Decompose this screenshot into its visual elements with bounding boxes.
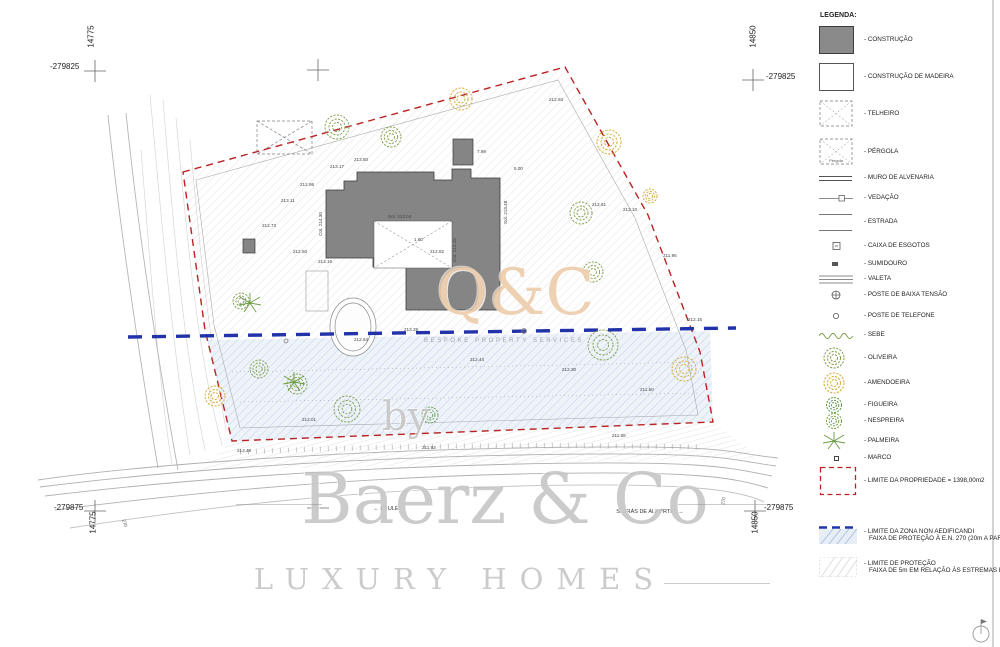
outbuilding-top: [453, 139, 473, 165]
almond-tree-swatch-icon: [819, 371, 849, 395]
almond-tree-icon: [597, 130, 621, 154]
power-pole-swatch-icon: [819, 289, 853, 301]
svg-text:Sol. 213.48: Sol. 213.48: [503, 200, 508, 224]
legend-item-label: - CONSTRUÇÃO DE MADEIRA: [864, 73, 954, 81]
olive-tree-swatch-icon: [819, 346, 849, 370]
legend-item-label: - CONSTRUÇÃO: [864, 36, 913, 44]
legend-item-label: - NESPREIRA: [864, 417, 904, 425]
legend-item-label: - POSTE DE TELEFONE: [864, 312, 935, 320]
svg-text:212.44: 212.44: [470, 357, 484, 362]
svg-text:213.17: 213.17: [330, 164, 344, 169]
legend-item-oliveira: - OLIVEIRA: [819, 346, 897, 370]
legend-item-label: - OLIVEIRA: [864, 354, 897, 362]
svg-text:213.10: 213.10: [623, 207, 637, 212]
brand-watermark-line-right: [678, 504, 768, 505]
non-aedificandi-hatch: [207, 331, 713, 441]
legend-item-nespreira: - NESPREIRA: [819, 412, 904, 430]
qc-watermark: Q&C: [436, 256, 594, 330]
svg-text:213.16: 213.16: [318, 259, 332, 264]
telheiro-swatch-icon: [819, 100, 853, 127]
legend-item-construcao: - CONSTRUÇÃO: [819, 26, 913, 53]
palm-tree-swatch-icon: [819, 430, 849, 452]
svg-text:213.11: 213.11: [281, 198, 295, 203]
svg-text:212.95: 212.95: [300, 182, 314, 187]
drain-swatch-icon: [832, 262, 838, 266]
outbuilding-left: [243, 239, 255, 253]
svg-text:212.30: 212.30: [562, 367, 576, 372]
legend-item-muro: - MURO DE ALVENARIA: [819, 172, 934, 184]
site-plan-page: 213.17 213.50 212.95 213.11 212.73 212.5…: [0, 0, 1000, 647]
svg-text:212.54: 212.54: [354, 337, 368, 342]
pool: [330, 298, 376, 356]
qc-watermark-subtitle: BESPOKE PROPERTY SERVICES: [424, 338, 584, 344]
hedge-swatch-icon: [819, 330, 853, 340]
construction-swatch-icon: [819, 26, 854, 54]
pergola-swatch-icon: Pérgola: [819, 138, 853, 165]
left-road: [108, 113, 178, 470]
non-aedificandi-swatch-icon: [819, 526, 857, 544]
svg-text:Sol. 213.04: Sol. 213.04: [388, 214, 412, 219]
legend-item-amendoeira: - AMENDOEIRA: [819, 371, 910, 395]
svg-text:211.96: 211.96: [663, 253, 677, 258]
svg-text:213.50: 213.50: [354, 157, 368, 162]
svg-text:211.58: 211.58: [612, 433, 626, 438]
legend-item-label: - LIMITE DA PROPRIEDADE = 1398,00m2: [864, 477, 985, 485]
svg-text:212.01: 212.01: [302, 417, 316, 422]
legend-title: LEGENDA:: [820, 12, 857, 19]
svg-text:211.50: 211.50: [640, 387, 654, 392]
legend-item-limite-propriedade: - LIMITE DA PROPRIEDADE = 1398,00m2: [819, 466, 985, 496]
legend-item-palmeira: - PALMEIRA: [819, 430, 899, 452]
svg-text:212.82: 212.82: [430, 249, 444, 254]
legend-item-caixa-esgotos: - CAIXA DE ESGOTOS: [819, 240, 930, 252]
legend-item-label: - FIGUEIRA: [864, 401, 898, 409]
svg-text:213.48: 213.48: [237, 448, 251, 453]
legend-item-poste-baixa-tensao: - POSTE DE BAIXA TENSÃO: [819, 288, 947, 302]
legend-item-valeta: - VALETA: [819, 272, 891, 286]
legend-item-label: - LIMITE DE PROTEÇÃO FAIXA DE 5m EM RELA…: [864, 560, 1000, 575]
brand-watermark: Baerz & Co: [230, 458, 780, 540]
svg-text:213.25: 213.25: [404, 327, 418, 332]
legend-item-telheiro: - TELHEIRO: [819, 100, 899, 127]
svg-text:Cot. 214.30: Cot. 214.30: [318, 212, 323, 236]
phone-pole-swatch-icon: [819, 311, 853, 321]
boundary-marker-swatch-icon: [834, 456, 839, 461]
legend-item-label: - PÉRGOLA: [864, 148, 898, 156]
coord-label-top-left-x: -279825: [50, 62, 79, 71]
protection-limit-swatch-icon: [819, 557, 857, 577]
legend-item-label: - PALMEIRA: [864, 437, 899, 445]
legend-item-label: - ESTRADA: [864, 218, 898, 226]
legend-item-label: - VEDAÇÃO: [864, 194, 899, 202]
coord-label-top-right-y: 14850: [749, 20, 758, 54]
coord-label-bottom-left-x: -279875: [54, 503, 83, 512]
svg-text:5.00: 5.00: [514, 166, 523, 171]
legend-item-pergola: Pérgola - PÉRGOLA: [819, 138, 898, 165]
legend-item-estrada: - ESTRADA: [819, 210, 898, 234]
svg-text:212.50: 212.50: [293, 249, 307, 254]
legend-item-label: - MURO DE ALVENARIA: [864, 174, 934, 182]
by-watermark: by: [382, 394, 430, 440]
legend-item-label: - SUMIDOURO: [864, 260, 907, 268]
legend-item-label: - MARCO: [864, 454, 891, 462]
legend-item-sumidouro: - SUMIDOURO: [819, 258, 907, 270]
legend-item-zona-non-aedificandi: - LIMITE DA ZONA NON AEDIFICANDI FAIXA D…: [819, 526, 1000, 544]
almond-tree-icon: [205, 386, 225, 406]
svg-text:212.15: 212.15: [688, 317, 702, 322]
legend-item-marco: - MARCO: [819, 452, 891, 464]
fence-swatch-icon: [819, 194, 853, 203]
coord-label-top-right-x: -279825: [766, 72, 795, 81]
brand-watermark-line-left: [236, 504, 322, 505]
svg-text:7.98: 7.98: [477, 149, 486, 154]
svg-text:212.73: 212.73: [262, 223, 276, 228]
tagline-watermark: LUXURY HOMES: [240, 562, 680, 596]
svg-text:212.93: 212.93: [549, 97, 563, 102]
svg-text:212.61: 212.61: [592, 202, 606, 207]
legend-item-sebe: - SEBE: [819, 329, 885, 341]
tagline-watermark-line: [664, 583, 770, 584]
road-swatch-icon: [819, 214, 852, 231]
masonry-wall-swatch-icon: [819, 176, 852, 181]
legend-item-label: - LIMITE DA ZONA NON AEDIFICANDI FAIXA D…: [864, 528, 1000, 543]
coord-label-top-left-y: 14775: [87, 20, 96, 54]
legend-item-label: - POSTE DE BAIXA TENSÃO: [864, 291, 947, 299]
legend-item-label: - VALETA: [864, 275, 891, 283]
legend-item-label: - CAIXA DE ESGOTOS: [864, 242, 930, 250]
legend-item-vedacao: - VEDAÇÃO: [819, 192, 899, 204]
svg-text:Pérgola: Pérgola: [829, 158, 844, 163]
ditch-swatch-icon: [819, 275, 853, 284]
legend-item-label: - AMENDOEIRA: [864, 379, 910, 387]
legend-item-label: - TELHEIRO: [864, 110, 899, 118]
svg-text:211.93: 211.93: [422, 445, 436, 450]
legend-item-poste-telefone: - POSTE DE TELEFONE: [819, 310, 935, 322]
road-number-label: 270: [121, 519, 128, 528]
coord-label-bottom-left-y: 14775: [89, 506, 98, 540]
north-arrow-icon: [973, 619, 989, 642]
property-limit-swatch-icon: [819, 466, 857, 496]
legend-item-label: - SEBE: [864, 331, 885, 339]
legend-item-limite-protecao: - LIMITE DE PROTEÇÃO FAIXA DE 5m EM RELA…: [819, 557, 1000, 577]
loquat-tree-swatch-icon: [819, 412, 849, 430]
almond-tree-icon: [643, 189, 657, 203]
svg-text:1.60: 1.60: [414, 237, 423, 242]
sewer-box-swatch-icon: [819, 241, 853, 251]
wood-construction-swatch-icon: [819, 63, 854, 91]
legend-item-construcao-madeira: - CONSTRUÇÃO DE MADEIRA: [819, 63, 954, 90]
